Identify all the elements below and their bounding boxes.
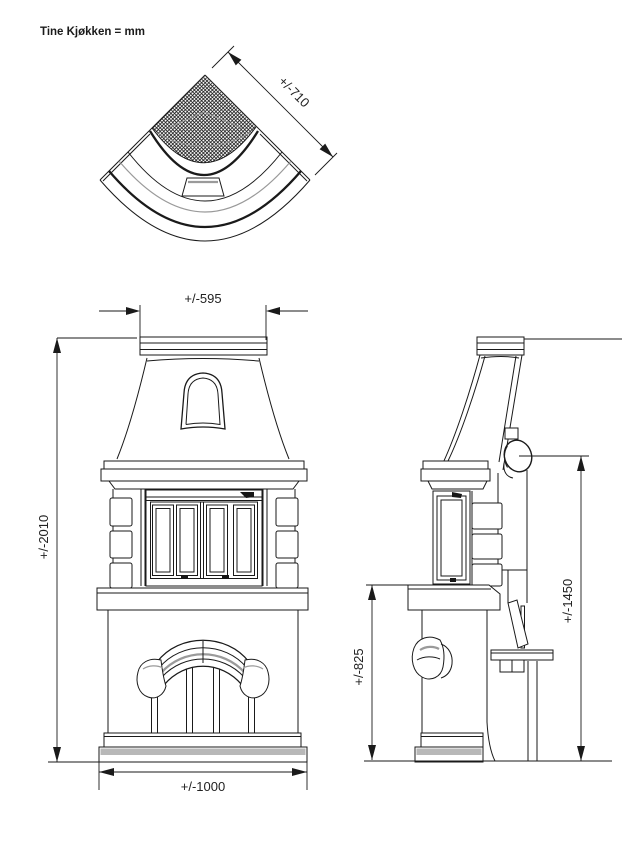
arch-ornament [137,640,269,698]
base-front [108,610,298,734]
plinth-front [99,733,307,762]
dimension-1000-label: +/-1000 [181,779,225,794]
side-view: +/-825 +/-1450 [351,337,622,762]
top-view: +/-710 [100,46,337,241]
flue-outlet [500,428,536,478]
technical-drawing-page: Tine Kjøkken = mm [0,0,632,860]
dimension-595-label: +/-595 [184,291,221,306]
mantel-shelf-side [421,461,490,489]
side-bench [491,650,553,761]
firebox-side [433,491,502,586]
drawing-canvas: +/-710 [0,0,632,860]
plinth-side [415,733,483,762]
firebox-front [110,489,298,588]
dimension-825-label: +/-825 [351,648,366,685]
hearth-band-front [97,588,308,610]
pedestal-top-view [182,178,224,196]
dimension-1450-label: +/-1450 [560,579,575,623]
firebox-door [146,490,262,586]
dimension-1450: +/-1450 [519,456,589,761]
dimension-2010-label: +/-2010 [36,515,51,559]
dimension-595: +/-595 [99,291,308,340]
front-view: +/-595 +/-2010 +/-1000 [36,291,308,794]
chimney-cap-front [140,337,267,355]
mantel-shelf-front [101,461,307,489]
chimney-cap-side [477,337,524,355]
arch-end-side [412,637,444,679]
hatch-region [152,76,256,163]
